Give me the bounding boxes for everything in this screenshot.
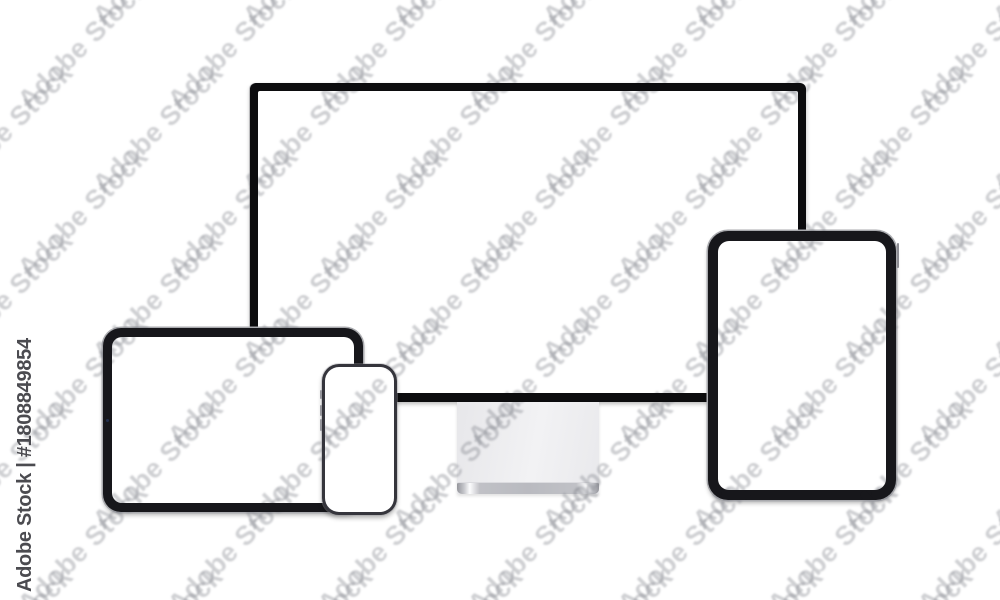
watermark-tile: Adobe Stock (84, 0, 227, 32)
monitor-stand-base (457, 482, 599, 494)
tablet-power-button (897, 243, 900, 268)
watermark-tile: Adobe Stock (834, 561, 977, 600)
stock-mockup-scene: Adobe StockAdobe StockAdobe StockAdobe S… (0, 0, 1000, 600)
watermark-tile: Adobe Stock (0, 561, 77, 600)
smartphone-screen (325, 367, 394, 512)
smartphone-volume-up-button (320, 405, 323, 416)
watermark-tile: Adobe Stock (909, 309, 1000, 452)
watermark-tile: Adobe Stock (534, 561, 677, 600)
watermark-tile: Adobe Stock (834, 0, 977, 32)
watermark-tile: Adobe Stock (0, 393, 77, 536)
watermark-tile: Adobe Stock (909, 477, 1000, 600)
watermark-tile: Adobe Stock (9, 0, 152, 116)
watermark-tile: Adobe Stock (384, 0, 527, 32)
smartphone-mute-switch (320, 390, 323, 399)
smartphone-volume-down-button (320, 419, 323, 431)
watermark-tile: Adobe Stock (234, 0, 377, 32)
watermark-tile: Adobe Stock (684, 561, 827, 600)
watermark-tile: Adobe Stock (834, 57, 977, 200)
watermark-tile: Adobe Stock (459, 477, 602, 600)
watermark-tile: Adobe Stock (984, 561, 1000, 600)
watermark-tile: Adobe Stock (84, 57, 227, 200)
watermark-tile: Adobe Stock (984, 0, 1000, 32)
watermark-tile: Adobe Stock (984, 225, 1000, 368)
tablet-portrait (708, 231, 896, 500)
monitor-stand (457, 402, 599, 494)
watermark-credit: Adobe Stock | #1808849854 (14, 338, 37, 592)
watermark-tile: Adobe Stock (384, 561, 527, 600)
watermark-tile: Adobe Stock (234, 561, 377, 600)
front-camera-icon (106, 419, 109, 422)
watermark-tile: Adobe Stock (9, 141, 152, 284)
watermark-tile: Adobe Stock (0, 57, 77, 200)
watermark-tile: Adobe Stock (909, 0, 1000, 116)
watermark-tile: Adobe Stock (0, 225, 77, 368)
watermark-tile: Adobe Stock (0, 0, 77, 32)
watermark-tile: Adobe Stock (984, 393, 1000, 536)
smartphone (322, 364, 397, 515)
watermark-tile: Adobe Stock (909, 141, 1000, 284)
watermark-tile: Adobe Stock (984, 57, 1000, 200)
watermark-tile: Adobe Stock (684, 0, 827, 32)
watermark-tile: Adobe Stock (84, 561, 227, 600)
tablet-portrait-screen (718, 241, 886, 490)
watermark-tile: Adobe Stock (534, 0, 677, 32)
tablet-landscape-screen (112, 337, 354, 503)
